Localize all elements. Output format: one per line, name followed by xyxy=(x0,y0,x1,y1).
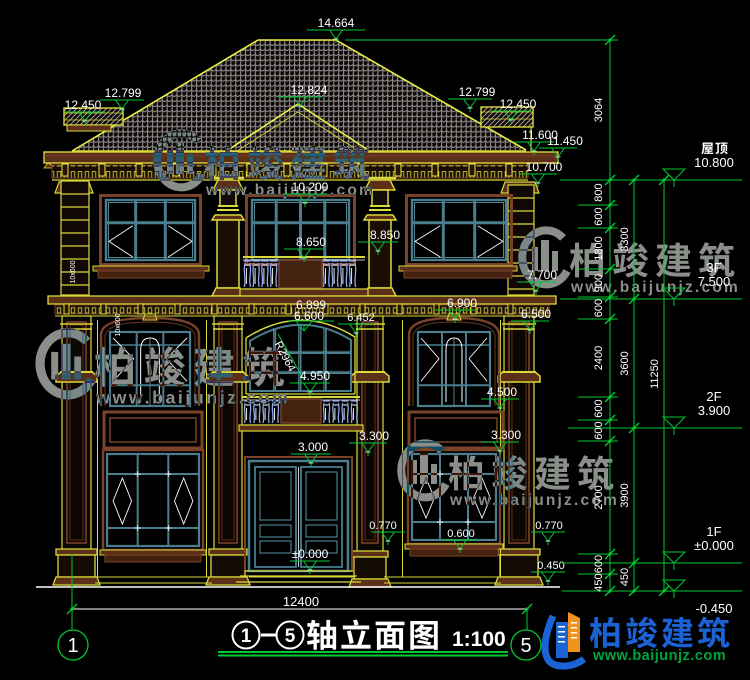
svg-text:-0.450: -0.450 xyxy=(696,601,733,616)
svg-text:900: 900 xyxy=(593,274,605,292)
svg-text:5: 5 xyxy=(520,635,531,657)
svg-text:12.450: 12.450 xyxy=(500,97,537,111)
svg-text:3.300: 3.300 xyxy=(359,429,389,443)
svg-text:600: 600 xyxy=(593,555,605,573)
svg-text:12.799: 12.799 xyxy=(459,85,496,99)
svg-text:±0.000: ±0.000 xyxy=(694,538,734,553)
svg-text:12400: 12400 xyxy=(283,594,319,609)
svg-text:2400: 2400 xyxy=(593,346,605,370)
svg-text:1:100: 1:100 xyxy=(452,628,506,651)
svg-text:www.baijunjz.com: www.baijunjz.com xyxy=(95,388,290,408)
svg-text:0.770: 0.770 xyxy=(369,520,397,532)
svg-text:www.baijunjz.com: www.baijunjz.com xyxy=(592,648,726,664)
svg-text:2F: 2F xyxy=(706,389,721,404)
svg-text:6.900: 6.900 xyxy=(447,296,477,310)
svg-text:0.770: 0.770 xyxy=(535,520,563,532)
svg-text:4.950: 4.950 xyxy=(300,369,330,383)
svg-text:±0.000: ±0.000 xyxy=(292,547,329,561)
svg-text:3F: 3F xyxy=(706,260,721,275)
svg-text:7.700: 7.700 xyxy=(527,268,557,282)
svg-text:1800: 1800 xyxy=(593,236,605,260)
svg-text:10x600: 10x600 xyxy=(115,313,122,336)
svg-text:12.799: 12.799 xyxy=(105,86,142,100)
svg-text:11250: 11250 xyxy=(649,359,661,389)
svg-text:600: 600 xyxy=(593,421,605,439)
svg-text:3.300: 3.300 xyxy=(491,428,521,442)
svg-text:5: 5 xyxy=(285,626,296,647)
svg-text:11.450: 11.450 xyxy=(547,134,583,148)
svg-text:8.850: 8.850 xyxy=(370,228,400,242)
svg-text:3300: 3300 xyxy=(619,227,631,251)
svg-text:8.650: 8.650 xyxy=(296,235,326,249)
svg-text:6.452: 6.452 xyxy=(347,312,375,324)
svg-text:12.824: 12.824 xyxy=(291,83,328,97)
svg-text:12.450: 12.450 xyxy=(65,98,102,112)
svg-text:1F: 1F xyxy=(706,524,721,539)
svg-text:0.600: 0.600 xyxy=(447,528,475,540)
svg-text:3600: 3600 xyxy=(619,351,631,375)
svg-text:800: 800 xyxy=(593,183,605,201)
svg-text:10.200: 10.200 xyxy=(292,180,329,194)
svg-text:10x600: 10x600 xyxy=(70,260,77,283)
svg-text:0.450: 0.450 xyxy=(537,560,565,572)
svg-text:2700: 2700 xyxy=(593,485,605,509)
svg-text:3900: 3900 xyxy=(619,483,631,507)
svg-text:600: 600 xyxy=(593,399,605,417)
svg-text:600: 600 xyxy=(593,207,605,225)
svg-text:10.700: 10.700 xyxy=(526,160,563,174)
svg-text:7.500: 7.500 xyxy=(698,274,731,289)
svg-text:www.baijunjz.com: www.baijunjz.com xyxy=(205,182,375,199)
svg-text:3.900: 3.900 xyxy=(698,403,731,418)
svg-text:1: 1 xyxy=(67,635,78,657)
svg-text:6.500: 6.500 xyxy=(521,307,551,321)
svg-text:600: 600 xyxy=(593,299,605,317)
svg-text:14.664: 14.664 xyxy=(318,16,355,30)
svg-text:1: 1 xyxy=(241,626,252,647)
svg-text:450: 450 xyxy=(619,568,631,586)
svg-text:3.000: 3.000 xyxy=(298,440,328,454)
svg-text:4.500: 4.500 xyxy=(487,385,517,399)
svg-text:10.800: 10.800 xyxy=(694,155,734,170)
svg-text:3064: 3064 xyxy=(593,98,605,122)
svg-text:450: 450 xyxy=(593,573,605,591)
